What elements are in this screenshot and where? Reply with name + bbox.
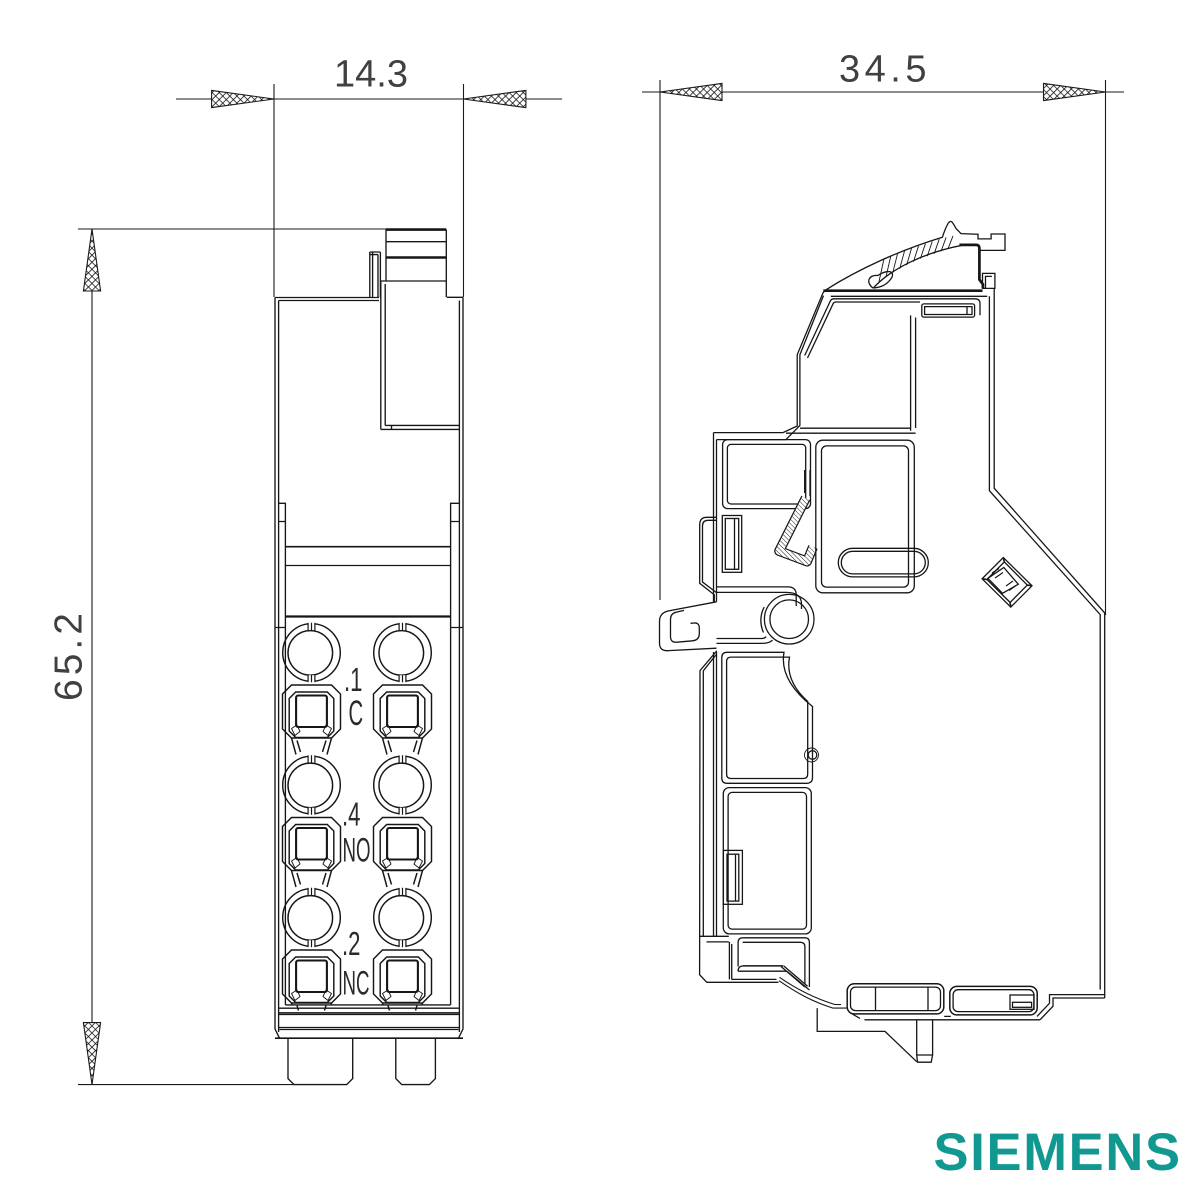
svg-text:34.5: 34.5 xyxy=(839,48,931,90)
svg-text:.2: .2 xyxy=(342,925,360,963)
svg-text:.4: .4 xyxy=(342,796,360,834)
svg-text:NC: NC xyxy=(343,964,370,1002)
svg-text:14.3: 14.3 xyxy=(334,53,408,95)
svg-text:NO: NO xyxy=(343,831,371,869)
svg-text:SIEMENS: SIEMENS xyxy=(934,1123,1182,1182)
svg-text:65.2: 65.2 xyxy=(48,609,91,701)
svg-text:C: C xyxy=(349,694,364,733)
